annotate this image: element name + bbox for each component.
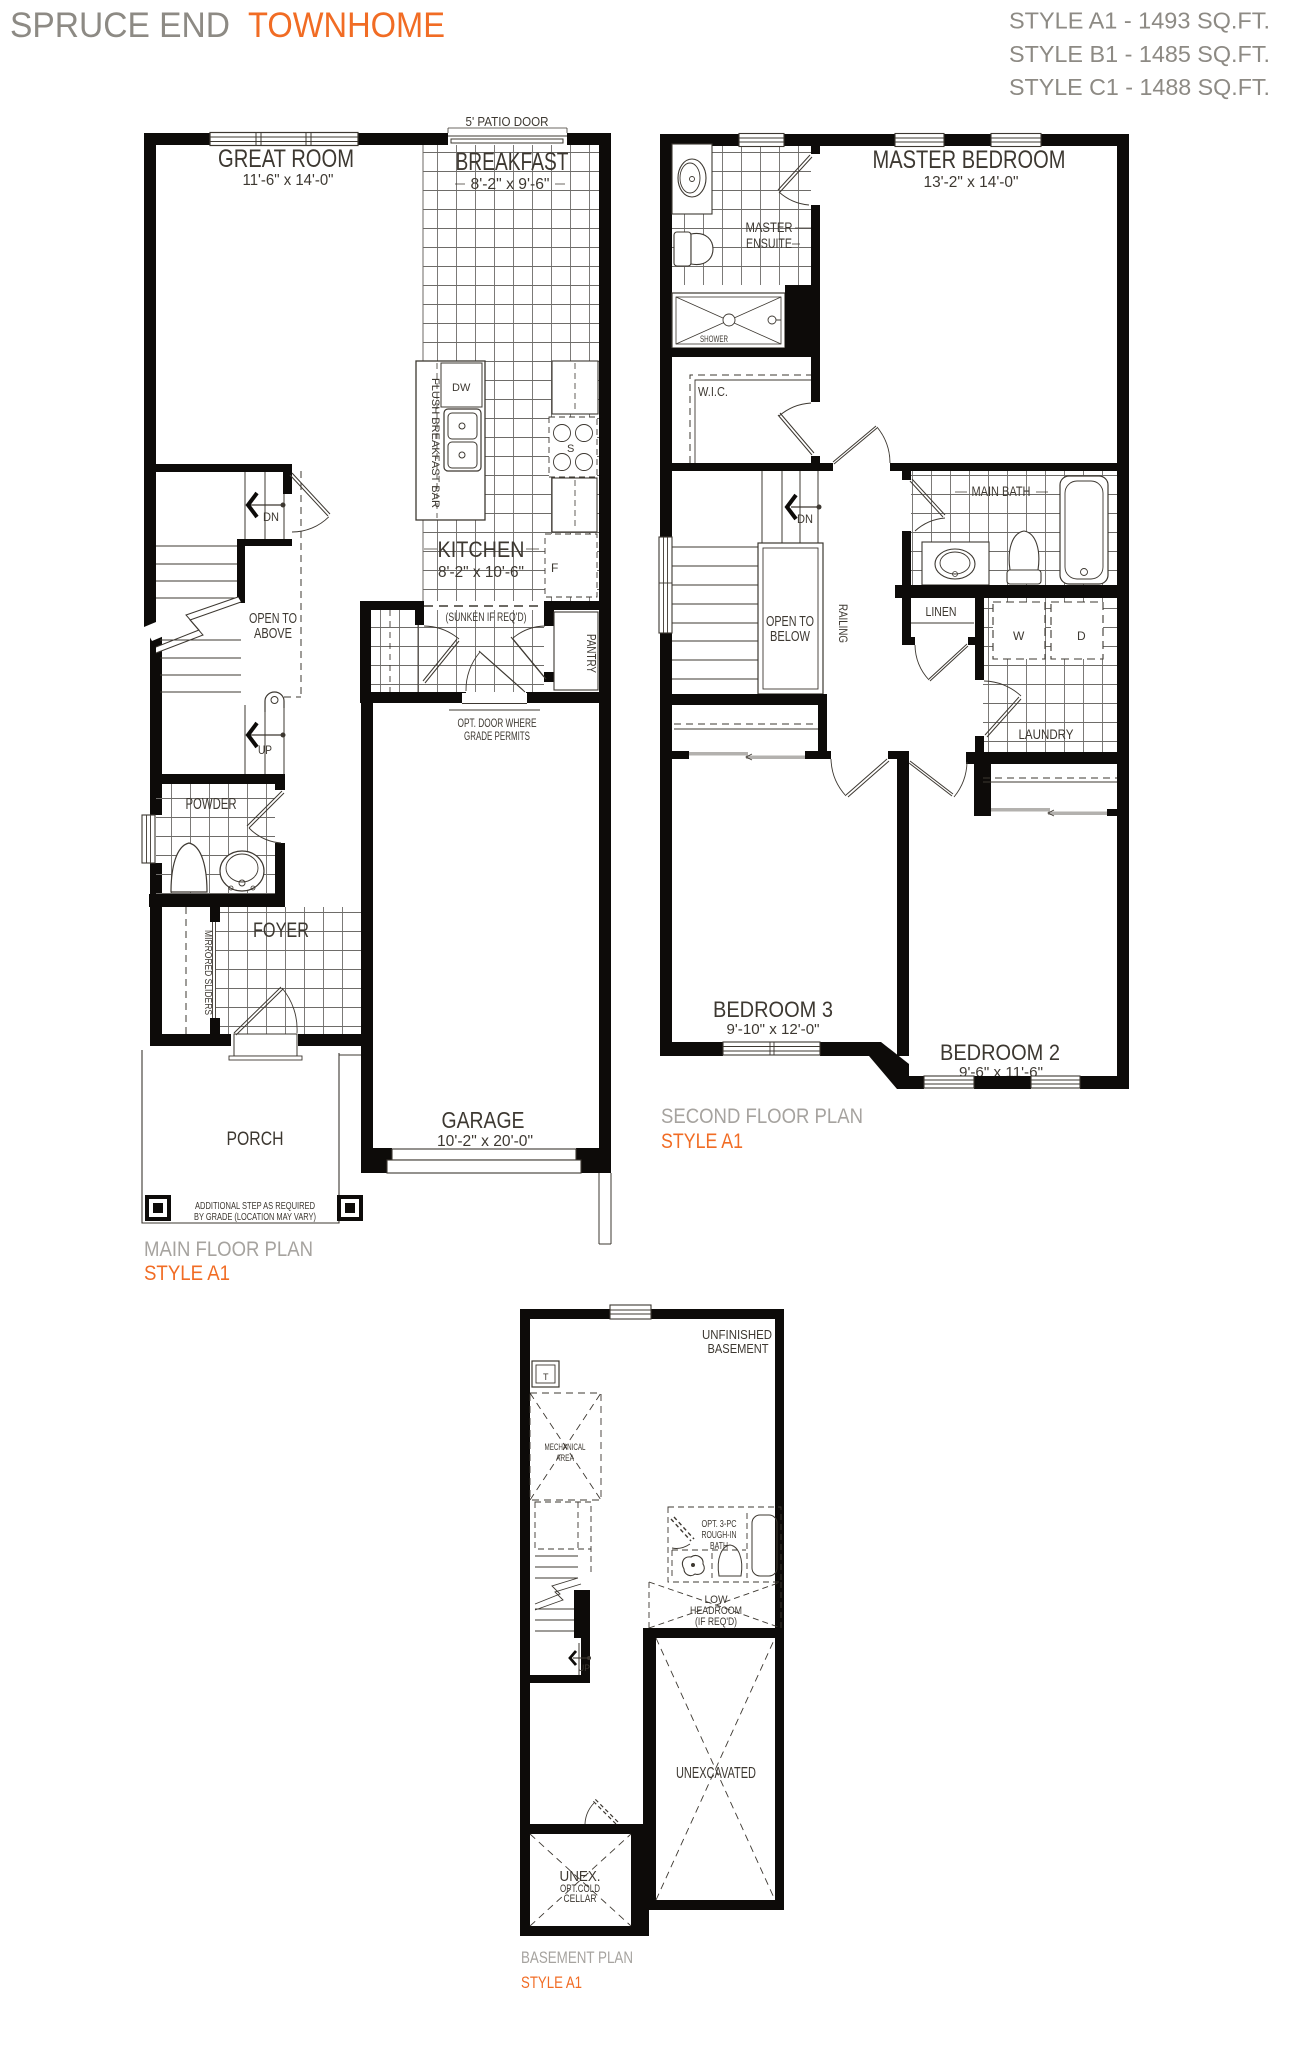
svg-text:STYLE A1: STYLE A1 bbox=[661, 1130, 743, 1153]
svg-text:ROUGH-IN: ROUGH-IN bbox=[702, 1530, 737, 1541]
svg-text:W: W bbox=[1013, 629, 1025, 643]
svg-text:ENSUITE: ENSUITE bbox=[746, 235, 792, 251]
svg-text:S: S bbox=[567, 443, 574, 455]
svg-text:MAIN FLOOR PLAN: MAIN FLOOR PLAN bbox=[144, 1238, 313, 1261]
svg-text:UP: UP bbox=[258, 745, 272, 757]
svg-text:13'-2" x 14'-0": 13'-2" x 14'-0" bbox=[924, 174, 1019, 191]
svg-text:CELLAR: CELLAR bbox=[564, 1893, 597, 1905]
svg-text:FLUSH BREAKFAST BAR: FLUSH BREAKFAST BAR bbox=[429, 378, 441, 508]
svg-text:STYLE A1: STYLE A1 bbox=[144, 1262, 230, 1285]
svg-text:(IF REQ'D): (IF REQ'D) bbox=[695, 1616, 737, 1628]
svg-text:BEDROOM 3: BEDROOM 3 bbox=[713, 997, 833, 1022]
svg-text:OPT. DOOR WHERE: OPT. DOOR WHERE bbox=[458, 716, 537, 730]
svg-text:UNEXCAVATED: UNEXCAVATED bbox=[676, 1765, 756, 1782]
svg-text:MECHANICAL: MECHANICAL bbox=[545, 1442, 586, 1453]
svg-text:ABOVE: ABOVE bbox=[254, 626, 292, 642]
svg-text:TOWNHOME: TOWNHOME bbox=[248, 6, 445, 45]
svg-text:STYLE B1 - 1485 SQ.FT.: STYLE B1 - 1485 SQ.FT. bbox=[1009, 41, 1270, 67]
svg-text:OPEN TO: OPEN TO bbox=[766, 614, 814, 630]
svg-text:W.I.C.: W.I.C. bbox=[698, 384, 728, 399]
svg-text:8'-2" x 9'-6": 8'-2" x 9'-6" bbox=[471, 176, 550, 193]
svg-text:GRADE PERMITS: GRADE PERMITS bbox=[464, 729, 530, 743]
svg-text:11'-6" x 14'-0": 11'-6" x 14'-0" bbox=[243, 172, 334, 189]
svg-text:POWDER: POWDER bbox=[186, 796, 237, 813]
svg-text:DN: DN bbox=[797, 514, 813, 526]
svg-text:LAUNDRY: LAUNDRY bbox=[1019, 726, 1075, 742]
svg-text:GREAT ROOM: GREAT ROOM bbox=[218, 145, 354, 173]
svg-text:D: D bbox=[1077, 629, 1086, 643]
svg-text:SHOWER: SHOWER bbox=[700, 334, 728, 344]
svg-text:SPRUCE END: SPRUCE END bbox=[10, 6, 230, 45]
svg-text:MASTER: MASTER bbox=[746, 219, 793, 235]
svg-text:GARAGE: GARAGE bbox=[442, 1107, 525, 1133]
svg-text:BASEMENT PLAN: BASEMENT PLAN bbox=[521, 1948, 633, 1967]
svg-text:STYLE A1 - 1493 SQ.FT.: STYLE A1 - 1493 SQ.FT. bbox=[1009, 8, 1270, 34]
svg-text:STYLE A1: STYLE A1 bbox=[521, 1973, 582, 1992]
svg-text:9'-10" x 12'-0": 9'-10" x 12'-0" bbox=[727, 1021, 820, 1038]
svg-text:MASTER BEDROOM: MASTER BEDROOM bbox=[873, 146, 1066, 174]
svg-text:MAIN BATH: MAIN BATH bbox=[972, 483, 1031, 499]
svg-text:BREAKFAST: BREAKFAST bbox=[456, 148, 569, 176]
svg-text:LINEN: LINEN bbox=[926, 605, 957, 619]
svg-text:ADDITIONAL STEP AS REQUIRED: ADDITIONAL STEP AS REQUIRED bbox=[195, 1201, 315, 1212]
svg-text:BEDROOM 2: BEDROOM 2 bbox=[940, 1040, 1060, 1065]
svg-text:MIRRORED SLIDERS: MIRRORED SLIDERS bbox=[202, 930, 213, 1015]
svg-text:FOYER: FOYER bbox=[253, 919, 309, 942]
svg-text:BY GRADE (LOCATION MAY VARY): BY GRADE (LOCATION MAY VARY) bbox=[194, 1212, 316, 1223]
svg-text:UP: UP bbox=[578, 1663, 590, 1673]
svg-text:RAILING: RAILING bbox=[836, 604, 848, 643]
svg-text:BELOW: BELOW bbox=[770, 629, 810, 645]
svg-text:DW: DW bbox=[452, 382, 471, 394]
svg-text:10'-2" x 20'-0": 10'-2" x 20'-0" bbox=[437, 1133, 533, 1150]
svg-text:AREA: AREA bbox=[556, 1453, 574, 1464]
svg-text:OPT. 3-PC: OPT. 3-PC bbox=[702, 1519, 737, 1530]
svg-text:DN: DN bbox=[263, 512, 279, 524]
svg-text:F: F bbox=[551, 561, 558, 575]
svg-text:OPEN TO: OPEN TO bbox=[249, 611, 297, 627]
svg-text:T: T bbox=[543, 1372, 549, 1382]
svg-text:(SUNKEN IF REQ'D): (SUNKEN IF REQ'D) bbox=[446, 610, 527, 624]
svg-text:STYLE C1 - 1488 SQ.FT.: STYLE C1 - 1488 SQ.FT. bbox=[1009, 74, 1270, 100]
svg-text:8'-2" x 10'-6": 8'-2" x 10'-6" bbox=[438, 564, 524, 581]
svg-text:BASEMENT: BASEMENT bbox=[708, 1341, 769, 1356]
svg-text:PORCH: PORCH bbox=[227, 1129, 284, 1150]
svg-text:KITCHEN: KITCHEN bbox=[438, 537, 525, 562]
svg-text:UNFINISHED: UNFINISHED bbox=[702, 1327, 772, 1342]
svg-text:SECOND FLOOR PLAN: SECOND FLOOR PLAN bbox=[661, 1105, 863, 1128]
svg-text:PANTRY: PANTRY bbox=[584, 634, 598, 674]
svg-text:5' PATIO DOOR: 5' PATIO DOOR bbox=[466, 114, 549, 129]
